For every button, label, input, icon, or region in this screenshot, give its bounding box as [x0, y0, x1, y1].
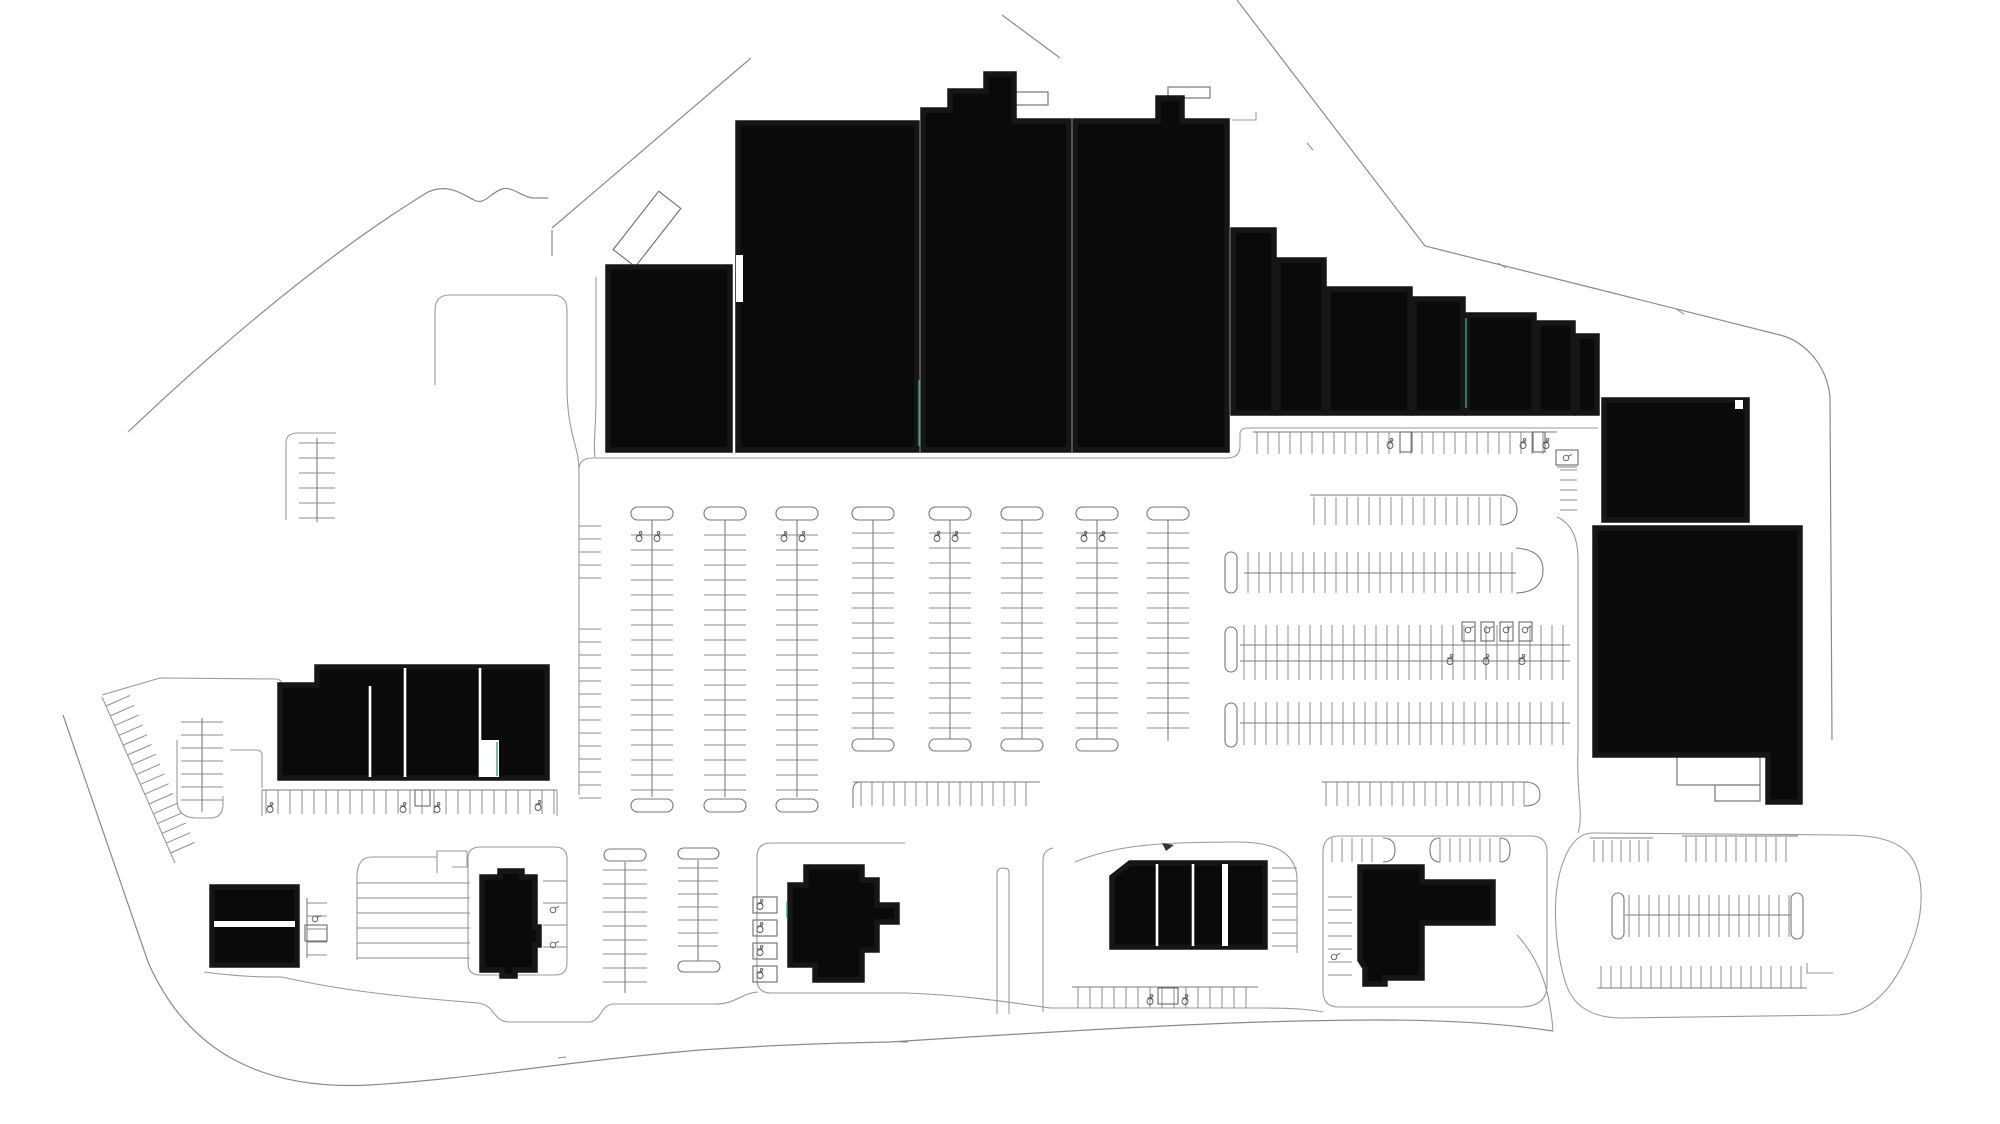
- shop-h: [1414, 299, 1463, 413]
- hc-cross-1: [757, 900, 763, 910]
- west-hook-island: [177, 740, 223, 818]
- anchor-a: [608, 267, 730, 450]
- ne-row-2: [1314, 497, 1501, 525]
- ne-road-tick-2: [1401, 215, 1407, 222]
- field-col-6-pill-top: [1001, 507, 1043, 520]
- field-col-7-pill-bot: [1076, 739, 1118, 751]
- pad-cross: [790, 867, 897, 980]
- corral-pad307: [305, 925, 327, 941]
- br-mid-pill-left: [1612, 893, 1624, 939]
- west-mini-curb: [286, 433, 336, 520]
- shop-g: [1328, 289, 1410, 413]
- hc-front-row-1: [267, 803, 273, 813]
- shop-j: [1538, 323, 1573, 413]
- pad-strip: [1112, 863, 1265, 947]
- east-row-b-pill-left: [1225, 627, 1237, 672]
- nw-lane-right: [594, 277, 596, 457]
- hc-row-b-3: [1519, 655, 1525, 665]
- tlot-top-cap-1: [1383, 838, 1395, 862]
- anchor-c-with-tower: [923, 74, 1069, 450]
- field-col-6-pill-bot: [1001, 739, 1043, 751]
- pad-t-shape: [1360, 867, 1493, 984]
- minilot-arrow-notch: [437, 851, 467, 873]
- cart-pad307: [312, 915, 321, 921]
- south-col-2-pill-top: [678, 848, 719, 859]
- field-col-8-pill-top: [1147, 507, 1189, 520]
- west-angled-curb: [102, 697, 175, 863]
- anchor-b-entry-slot: [736, 255, 743, 302]
- front-row-stalls: [266, 790, 554, 814]
- walk-behind-anchor-d: [1232, 112, 1256, 120]
- hc-cross-2: [757, 923, 763, 933]
- south-col-1-pill-top: [604, 849, 646, 861]
- hc-ne-row1-3: [1543, 439, 1549, 449]
- right-anchor-corner-notch: [1735, 400, 1743, 409]
- hc-ne-row1-1: [1387, 439, 1393, 449]
- ne-road-tick-1: [1307, 143, 1313, 150]
- field-col-4-pill-top: [852, 507, 894, 520]
- minilot-rows: [357, 883, 470, 958]
- south-lane-edge: [1043, 848, 1053, 1012]
- nw-boundary-curve: [128, 188, 548, 432]
- anchor-lane-west-1: [1557, 517, 1580, 833]
- hc-field-col3-a: [781, 532, 787, 542]
- entry-arrow-striplot: [1162, 843, 1174, 851]
- ne-row1-notch-1: [1400, 432, 1412, 452]
- west-lot-top-edge: [102, 678, 282, 695]
- right-anchor-dock-step-1: [1677, 755, 1760, 785]
- field-col-1-pill-bot: [631, 799, 673, 812]
- cart-padv-1: [550, 906, 559, 912]
- south-median: [997, 868, 1009, 1014]
- se-outer-swoop: [1517, 935, 1553, 1031]
- tower-canopy-1: [1014, 92, 1048, 105]
- pad-two-unit-divider: [214, 921, 295, 927]
- subrow-west-hook: [853, 782, 861, 808]
- hc-front-row-2: [400, 803, 406, 813]
- br-mid-pill-right: [1791, 893, 1803, 939]
- nw-lane-left: [567, 385, 579, 795]
- hc-front-row-3: [434, 803, 440, 813]
- right-anchor-upper: [1604, 400, 1747, 520]
- anchor-b: [738, 123, 917, 450]
- site-plan-canvas: [0, 0, 2000, 1124]
- ne-road-dash: [1002, 15, 1060, 58]
- tlot-top-row-2: [1440, 838, 1500, 862]
- br-top-row-1: [1594, 840, 1648, 862]
- hc-row-b-1: [1447, 655, 1453, 665]
- br-lot-outline: [1555, 833, 1921, 1018]
- corral-striplot: [1158, 988, 1178, 1004]
- br-mid-row: [1629, 895, 1789, 937]
- br-lot-step: [1807, 963, 1833, 973]
- bottom-lane-curb: [282, 977, 758, 1022]
- west-strip: [280, 667, 547, 778]
- rowa-right-cap: [1516, 548, 1543, 593]
- right-anchor-lower: [1595, 528, 1800, 802]
- ne-mini-col: [1560, 470, 1577, 510]
- corral-row-b-2: [1481, 622, 1494, 641]
- tlot-top-cap-3: [1500, 838, 1510, 862]
- cart-tlot: [1331, 953, 1340, 959]
- site-plan-container: [0, 0, 2000, 1124]
- subrow-east: [1326, 782, 1524, 806]
- br-bottom-row: [1601, 966, 1801, 988]
- shop-f: [1278, 260, 1324, 413]
- nw-lane-stalls-upper: [579, 526, 601, 578]
- south-col-2-pill-bot: [678, 961, 720, 972]
- hc-front-row-4: [535, 801, 541, 811]
- pad307-stalls: [307, 903, 327, 955]
- shop-k: [1577, 336, 1597, 413]
- anchor-d-with-tower: [1075, 98, 1227, 450]
- cart-row-b-1: [1465, 626, 1474, 632]
- tlot-left-stalls: [1328, 897, 1352, 975]
- east-row-a-pill-left: [1225, 552, 1237, 593]
- field-col-2-pill-top: [704, 507, 746, 520]
- field-col-7-pill-top: [1076, 507, 1118, 520]
- field-col-5-pill-top: [929, 507, 971, 520]
- pad-rotated-sign: [613, 191, 681, 267]
- hc-field-col3-b: [799, 532, 805, 542]
- right-anchor-dock-step-2: [1715, 785, 1760, 801]
- subrow-west: [861, 782, 1026, 806]
- site-plan-page: [0, 0, 2000, 1124]
- ne-row2-cap: [1501, 495, 1517, 525]
- building-layer: [212, 74, 1800, 984]
- tlot-top-cap-2: [1430, 838, 1440, 862]
- field-col-1-pill-top: [631, 507, 673, 520]
- east-row-c-pill-left: [1225, 703, 1237, 747]
- tlot-top-row-1: [1332, 838, 1372, 862]
- hc-striplot-2: [1182, 995, 1188, 1005]
- hc-field-col1-b: [654, 532, 660, 542]
- padv-right-stalls: [543, 881, 567, 947]
- corral-ne-row1: [1556, 450, 1578, 465]
- nw-curb-u: [435, 295, 567, 385]
- sw-lane-curb: [204, 972, 282, 977]
- pad-strip-gap: [1222, 864, 1228, 946]
- field-col-3-pill-top: [776, 507, 818, 520]
- east-row-b: [1244, 625, 1563, 680]
- west-inner-curb: [230, 750, 262, 788]
- field-col-3-pill-bot: [776, 799, 818, 812]
- nw-lane-stalls-lower: [579, 629, 601, 798]
- field-col-4-pill-bot: [852, 739, 894, 751]
- nw-diagonal-road: [552, 58, 751, 228]
- field-col-2-pill-bot: [704, 799, 746, 812]
- field-col-5-pill-bot: [929, 739, 971, 751]
- striplot-right-stalls: [1272, 868, 1297, 946]
- pad-vertical: [482, 871, 539, 976]
- hc-cross-3: [757, 946, 763, 956]
- hc-cross-4: [757, 969, 763, 979]
- south-line-tick-1: [558, 1057, 566, 1058]
- br-top-row-2: [1686, 837, 1786, 862]
- minilot-top-curb: [357, 857, 437, 877]
- shop-i: [1467, 315, 1534, 413]
- corral-row-b-3: [1500, 622, 1513, 641]
- striplot-bottom-row: [1078, 987, 1246, 1008]
- subrow-east-cap: [1524, 782, 1540, 806]
- hc-field-col1-a: [636, 532, 642, 542]
- cart-ne-row1: [1563, 454, 1572, 460]
- shop-e: [1233, 230, 1274, 413]
